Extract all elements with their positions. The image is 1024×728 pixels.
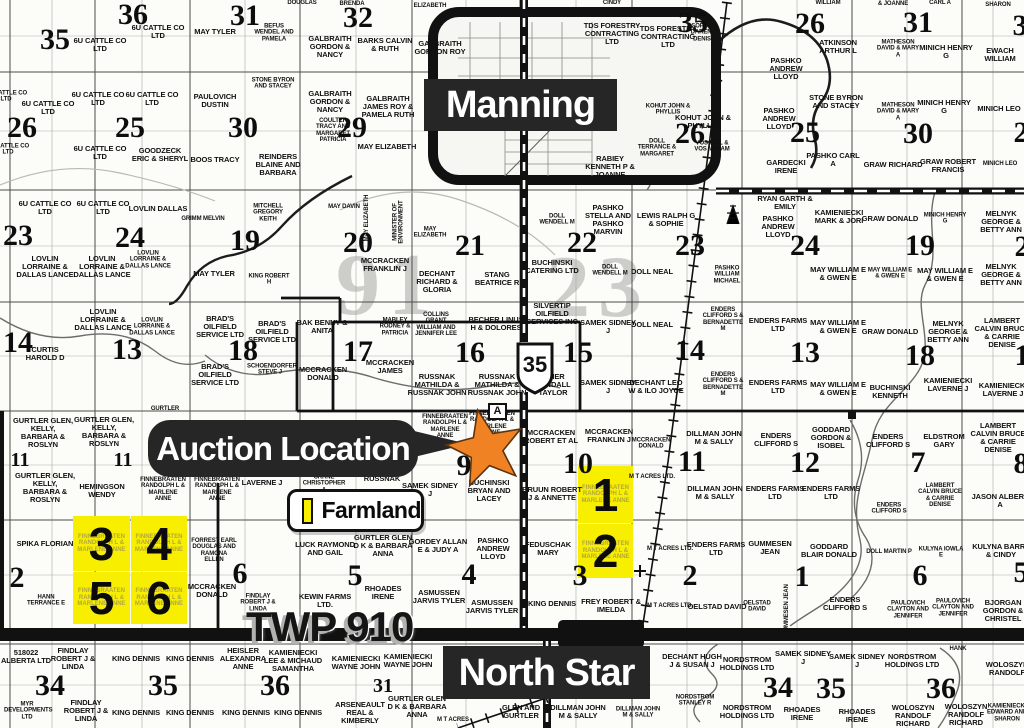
highway-35-shield: 35 xyxy=(512,340,558,396)
plat-map: 9123 xyxy=(0,0,1024,728)
farmland-swatch-icon xyxy=(302,498,313,524)
farmland-legend-label: Farmland xyxy=(321,499,421,522)
overlay-layer: Manning North Star A Auction Location Fa… xyxy=(0,0,1024,728)
north-star-town-label: North Star xyxy=(443,646,650,699)
twp-910-label: TWP 910 xyxy=(246,606,413,648)
farmland-legend: Farmland xyxy=(287,489,424,532)
svg-text:35: 35 xyxy=(523,352,547,377)
auction-location-callout: Auction Location xyxy=(148,420,418,477)
manning-town-label: Manning xyxy=(424,79,617,131)
auction-star-icon xyxy=(440,404,532,496)
